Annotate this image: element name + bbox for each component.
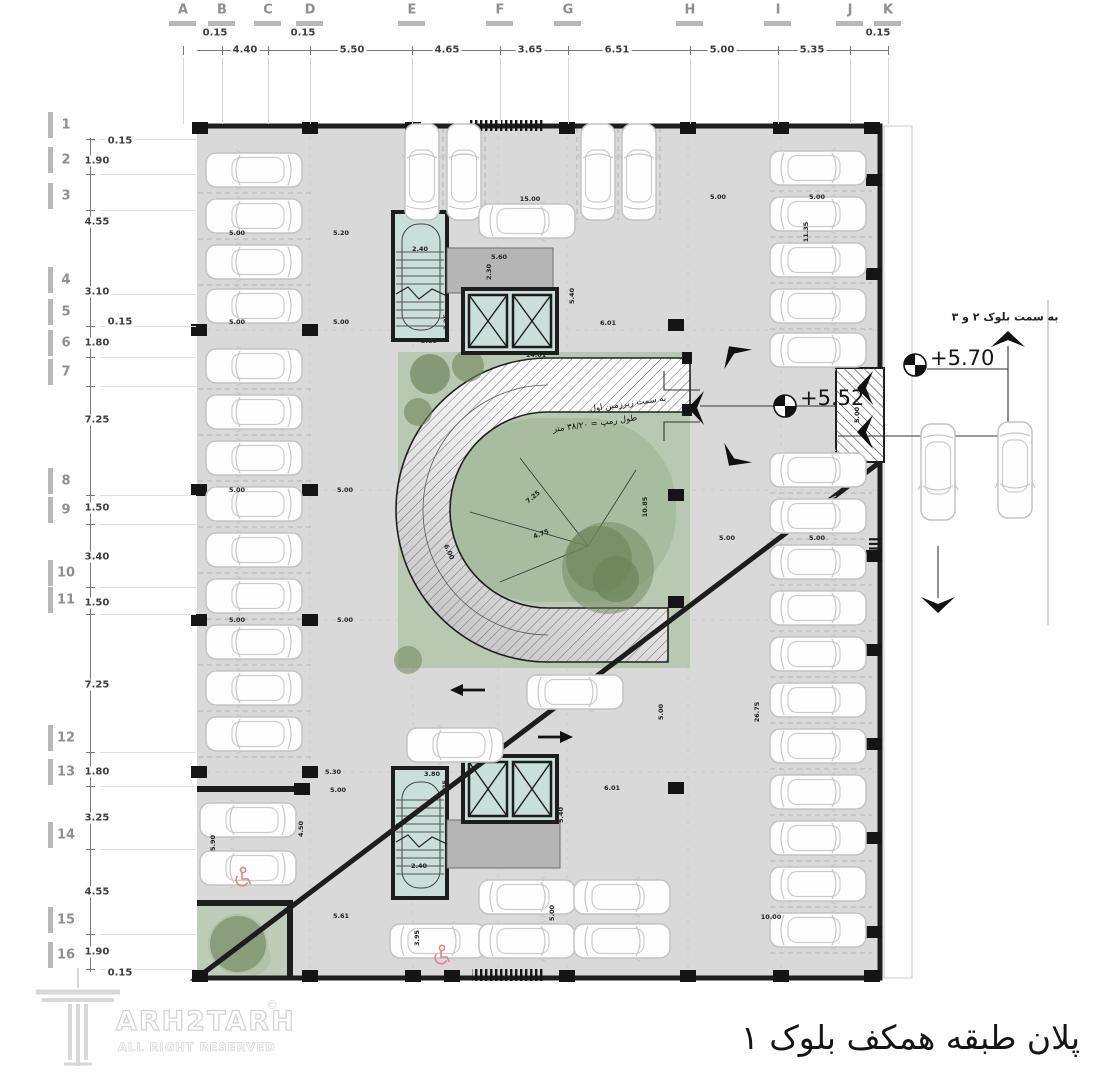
plan-dimension: 5.61	[333, 912, 349, 920]
grid-tick-bar	[100, 174, 196, 175]
grid-letter: I	[776, 3, 781, 18]
grid-tick-bar	[888, 58, 889, 124]
grid-tick-bar	[48, 183, 53, 209]
car-icon	[206, 576, 302, 616]
logo: ARH2TARH © ALL RIGHT RESERVED	[28, 978, 278, 1074]
grid-letter: K	[883, 3, 893, 18]
grid-tick-bar	[778, 58, 779, 124]
grid-tick-bar	[86, 210, 95, 211]
car-icon	[444, 124, 484, 220]
car-icon	[206, 196, 302, 236]
grid-dimension: 5.00	[708, 45, 737, 56]
grid-tick-bar	[183, 58, 184, 124]
grid-tick-bar	[48, 907, 53, 933]
grid-tick-bar	[86, 326, 95, 327]
grid-letter: F	[496, 3, 505, 18]
structural-column	[866, 738, 882, 750]
structural-column	[864, 970, 880, 982]
grid-dimension: 0.15	[864, 28, 893, 39]
grid-tick-bar	[48, 822, 53, 848]
structural-column	[773, 122, 789, 134]
structural-column	[302, 970, 318, 982]
car-icon	[206, 622, 302, 662]
car-icon	[619, 124, 659, 220]
plan-dimension: 4.50	[297, 821, 305, 837]
grid-tick-bar	[268, 46, 269, 55]
grid-dimension: 5.35	[798, 45, 827, 56]
grid-tick-bar	[100, 587, 196, 588]
grid-tick-bar	[500, 58, 501, 124]
grid-number: 6	[61, 336, 70, 351]
grid-number: 11	[57, 593, 75, 608]
car-icon	[770, 726, 866, 766]
structural-column	[559, 970, 575, 982]
grid-dimension: 1.50	[83, 503, 112, 514]
grid-tick-bar	[100, 849, 196, 850]
grid-tick-bar	[254, 21, 281, 26]
car-icon	[770, 240, 866, 280]
grid-number: 1	[61, 118, 70, 133]
grid-letter: D	[305, 3, 316, 18]
grid-letter: B	[217, 3, 227, 18]
plan-dimension: 5.60	[491, 253, 507, 261]
grid-tick-bar	[222, 46, 223, 55]
plan-dimension: 5.00	[229, 318, 245, 326]
grid-number: 8	[61, 474, 70, 489]
grid-letter: A	[178, 3, 188, 18]
car-icon	[770, 634, 866, 674]
grid-tick-bar	[86, 139, 95, 140]
grid-tick-bar	[86, 934, 95, 935]
grid-number: 10	[57, 566, 75, 581]
plan-dimension: 26.75	[753, 702, 761, 723]
structural-column	[405, 970, 421, 982]
grid-tick-bar	[486, 21, 513, 26]
car-icon	[402, 124, 442, 220]
plan-dimension: 2.40	[411, 862, 427, 870]
grid-number: 4	[61, 273, 70, 288]
car-icon	[770, 772, 866, 812]
structural-column	[668, 489, 684, 501]
plan-dimension: 5.00	[548, 905, 556, 921]
plan-dimension: 5.00	[710, 193, 726, 201]
grid-tick-bar	[850, 58, 851, 124]
car-icon	[770, 818, 866, 858]
structural-column	[866, 926, 882, 938]
grid-tick-bar	[568, 58, 569, 124]
grid-dimension: 4.55	[83, 217, 112, 228]
car-icon	[918, 424, 958, 520]
plan-dimension: 5.00	[337, 486, 353, 494]
structural-column	[191, 766, 207, 778]
car-icon	[770, 450, 866, 490]
grid-tick-bar	[100, 524, 196, 525]
grid-dimension: 0.15	[106, 968, 135, 979]
bottom-entrance-grill	[472, 969, 544, 981]
grid-tick-bar	[100, 357, 196, 358]
car-icon	[479, 201, 575, 241]
grid-letter: C	[263, 3, 273, 18]
grid-tick-bar	[100, 934, 196, 935]
plan-dimension: 5.90	[209, 835, 217, 851]
grid-tick-bar	[676, 21, 703, 26]
grid-tick-bar	[500, 46, 501, 55]
structural-column	[191, 614, 207, 626]
grid-tick-bar	[48, 330, 53, 356]
car-icon	[390, 921, 486, 961]
grid-letter: J	[848, 3, 853, 18]
grid-tick-bar	[412, 46, 413, 55]
grid-tick-bar	[86, 752, 95, 753]
plan-dimension: 10.85	[641, 497, 649, 518]
structural-column	[302, 484, 318, 496]
grid-tick-bar	[86, 849, 95, 850]
plan-dimension: 11.35	[802, 222, 810, 243]
grid-dimension: 1.80	[83, 767, 112, 778]
plan-dimension: 5.30	[325, 768, 341, 776]
grid-tick-bar	[310, 58, 311, 124]
grid-dimension: 3.10	[83, 287, 112, 298]
grid-tick-bar	[100, 495, 196, 496]
grid-tick-bar	[86, 614, 95, 615]
plan-dimension: 5.00	[229, 229, 245, 237]
car-icon	[206, 484, 302, 524]
car-icon	[770, 148, 866, 188]
plan-dimension: 5.40	[568, 288, 576, 304]
grid-tick-bar	[86, 174, 95, 175]
grid-tick-bar	[310, 46, 311, 55]
plan-dimension: 5.00	[229, 486, 245, 494]
grid-tick-bar	[86, 587, 95, 588]
grid-dimension: 0.15	[201, 28, 230, 39]
grid-dimension: 3.65	[516, 45, 545, 56]
grid-tick-bar	[690, 46, 691, 55]
grid-tick-bar	[86, 495, 95, 496]
car-icon	[770, 542, 866, 582]
grid-tick-bar	[100, 210, 196, 211]
grid-tick-bar	[48, 560, 53, 586]
level-marker-552	[774, 395, 796, 417]
grid-number: 15	[57, 913, 75, 928]
car-icon	[479, 877, 575, 917]
car-icon	[206, 392, 302, 432]
grid-dimension: 0.15	[289, 28, 318, 39]
plan-dimension: 5.00	[330, 786, 346, 794]
grid-tick-bar	[48, 942, 53, 968]
plan-dimension: 5.00	[229, 616, 245, 624]
grid-number: 5	[61, 305, 70, 320]
grid-tick-bar	[568, 46, 569, 55]
grid-number: 13	[57, 765, 75, 780]
plan-dimension: 3.80	[424, 770, 440, 778]
car-icon	[770, 588, 866, 628]
car-icon	[206, 438, 302, 478]
grid-tick-bar	[48, 359, 53, 385]
car-icon	[578, 124, 618, 220]
car-icon	[200, 848, 296, 888]
grid-number: 7	[61, 365, 70, 380]
grid-tick-bar	[48, 468, 53, 494]
structural-column	[866, 550, 882, 562]
car-icon	[206, 346, 302, 386]
grid-number: 9	[61, 503, 70, 518]
grid-dimension: 7.25	[83, 680, 112, 691]
grid-tick-bar	[86, 786, 95, 787]
grid-tick-bar	[86, 357, 95, 358]
car-icon	[206, 150, 302, 190]
direction-arrow-icon	[991, 331, 1025, 347]
car-icon	[206, 668, 302, 708]
car-icon	[995, 422, 1035, 518]
structural-column	[668, 596, 684, 608]
car-icon	[770, 286, 866, 326]
grid-tick-bar	[48, 147, 53, 173]
plan-dimension: 5.40	[557, 807, 565, 823]
car-icon	[770, 864, 866, 904]
plan-dimension: 2.40	[412, 245, 428, 253]
floor-plan-sheet: ABCDEFGHIJK0.154.400.155.504.653.656.515…	[0, 0, 1096, 1080]
level-value-570: +5.70	[930, 346, 994, 370]
plan-dimension: 2.25	[441, 780, 449, 796]
grid-tick-bar	[100, 752, 196, 753]
grid-tick-bar	[412, 58, 413, 124]
grid-tick-bar	[100, 614, 196, 615]
structural-column	[866, 174, 882, 186]
side-road	[884, 126, 912, 978]
grid-tick-bar	[850, 46, 851, 55]
grid-tick-bar	[48, 587, 53, 613]
plan-dimension: 5.20	[333, 229, 349, 237]
plan-dimension: 2.30	[485, 264, 493, 280]
car-icon	[407, 725, 503, 765]
car-icon	[206, 286, 302, 326]
structural-column	[866, 268, 882, 280]
grid-tick-bar	[208, 21, 235, 26]
grid-number: 12	[57, 731, 75, 746]
structural-column	[192, 122, 208, 134]
car-icon	[527, 672, 623, 712]
plan-dimension: 5.00	[719, 534, 735, 542]
grid-tick-bar	[836, 21, 863, 26]
structural-column	[680, 122, 696, 134]
structural-column	[866, 644, 882, 656]
car-icon	[770, 910, 866, 950]
grid-dimension: 4.65	[433, 45, 462, 56]
grid-tick-bar	[48, 497, 53, 523]
grid-tick-bar	[48, 267, 53, 293]
plan-dimension: 15.00	[520, 195, 541, 203]
grid-dimension: 3.40	[83, 552, 112, 563]
car-icon	[574, 921, 670, 961]
grid-letter: H	[685, 3, 696, 18]
grid-tick-bar	[48, 725, 53, 751]
plan-dimension: 3.80	[421, 337, 437, 345]
plan-dimension: 6.01	[604, 784, 620, 792]
plan-dimension: 5.00	[333, 318, 349, 326]
grid-tick-bar	[86, 969, 95, 970]
grid-dimension: 4.40	[231, 45, 260, 56]
structural-column	[302, 324, 318, 336]
grid-number: 2	[61, 153, 70, 168]
level-value-552: +5.52	[800, 386, 864, 410]
grid-dimension: 4.55	[83, 887, 112, 898]
grid-letter: E	[408, 3, 417, 18]
to-blocks-label: به سمت بلوک ۲ و ۳	[952, 311, 1059, 324]
structural-column	[294, 783, 310, 795]
car-icon	[206, 714, 302, 754]
plan-dimension: 5.00	[657, 704, 665, 720]
grid-tick-bar	[222, 58, 223, 124]
grid-tick-bar	[48, 112, 53, 138]
structural-column	[680, 970, 696, 982]
grid-tick-bar	[554, 21, 581, 26]
plan-dimension: 10.00	[761, 913, 782, 921]
plan-dimension: 5.00	[337, 616, 353, 624]
grid-dimension: 1.90	[83, 156, 112, 167]
structural-column	[864, 122, 880, 134]
plan-dimension: 14.01	[526, 351, 547, 359]
grid-number: 14	[57, 828, 75, 843]
plan-dimension: 5.00	[809, 193, 825, 201]
grid-tick-bar	[48, 759, 53, 785]
structural-column	[866, 832, 882, 844]
grid-tick-bar	[874, 21, 901, 26]
car-icon	[574, 877, 670, 917]
logo-copyright: ©	[266, 998, 278, 1012]
grid-dimension: 6.51	[603, 45, 632, 56]
car-icon	[770, 496, 866, 536]
grid-tick-bar	[268, 58, 269, 124]
grid-dimension: 1.90	[83, 947, 112, 958]
grid-dimension: 1.80	[83, 338, 112, 349]
car-icon	[770, 330, 866, 370]
car-icon	[206, 530, 302, 570]
grid-tick-bar	[888, 46, 889, 55]
grid-tick-bar	[100, 786, 196, 787]
grid-tick-bar	[690, 58, 691, 124]
plan-dimension: 3.95	[413, 930, 421, 946]
grid-tick-bar	[100, 386, 196, 387]
structural-column	[668, 319, 684, 331]
sheet-title: پلان طبقه همکف بلوک ۱	[741, 1018, 1080, 1057]
grid-dimension: 5.50	[338, 45, 367, 56]
grid-tick-bar	[778, 46, 779, 55]
grid-tick-bar	[86, 524, 95, 525]
structural-column	[773, 970, 789, 982]
structural-column	[444, 970, 460, 982]
direction-arrow-icon	[921, 597, 955, 613]
grid-tick-bar	[48, 299, 53, 325]
grid-tick-bar	[296, 21, 323, 26]
grid-tick-bar	[183, 46, 184, 55]
plan-dimension: 5.00	[809, 534, 825, 542]
grid-tick-bar	[100, 294, 196, 295]
structural-column	[668, 782, 684, 794]
grid-tick-bar	[169, 21, 196, 26]
structural-column	[302, 614, 318, 626]
structural-column	[302, 766, 318, 778]
grid-dimension: 7.25	[83, 415, 112, 426]
grid-tick-bar	[398, 21, 425, 26]
car-icon	[770, 680, 866, 720]
grid-number: 16	[57, 948, 75, 963]
grid-dimension: 1.50	[83, 598, 112, 609]
grid-tick-bar	[86, 386, 95, 387]
grid-dimension: 0.15	[106, 317, 135, 328]
plan-dimension: 2.25	[442, 314, 450, 330]
logo-tagline-text: ALL RIGHT RESERVED	[118, 1040, 276, 1054]
car-icon	[206, 242, 302, 282]
level-marker-570	[904, 354, 926, 376]
grid-letter: G	[563, 3, 574, 18]
grid-number: 3	[61, 189, 70, 204]
grid-dimension: 3.25	[83, 813, 112, 824]
grid-dimension: 0.15	[106, 136, 135, 147]
grid-tick-bar	[764, 21, 791, 26]
plan-dimension: 6.01	[600, 319, 616, 327]
car-icon	[479, 921, 575, 961]
